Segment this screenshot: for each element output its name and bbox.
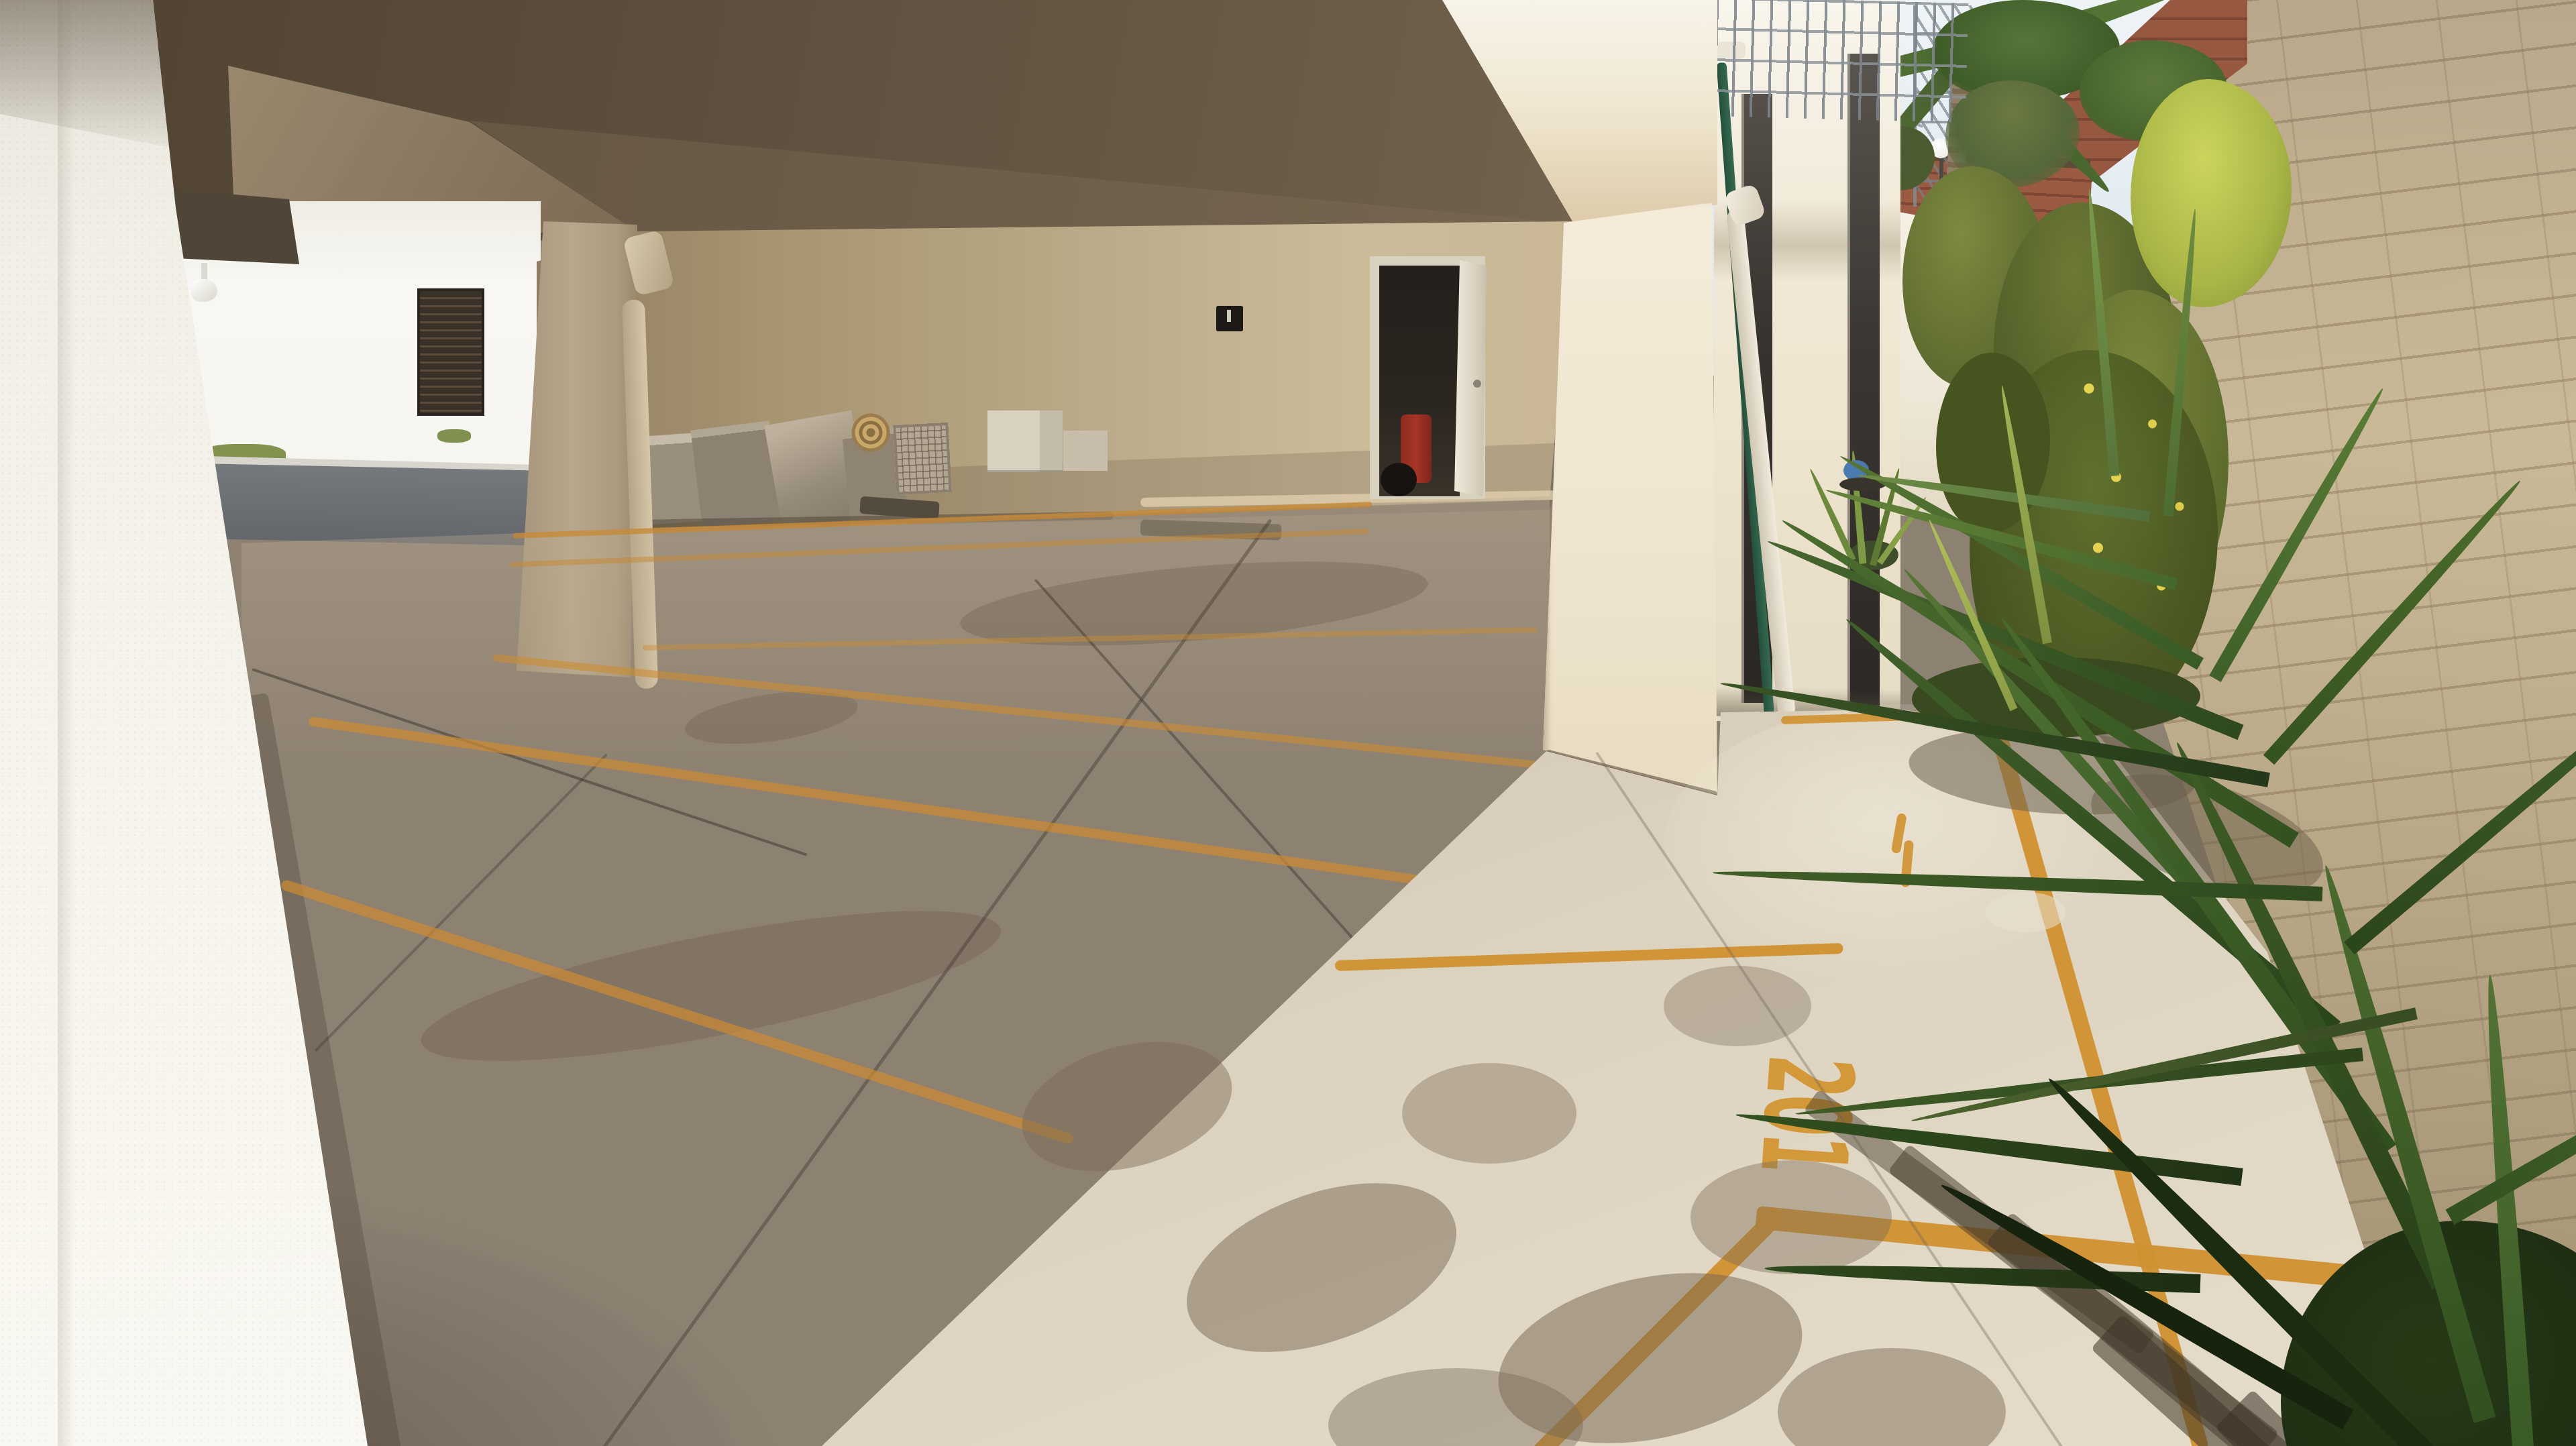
- grid-panel: [893, 423, 951, 495]
- grass-strip: [437, 429, 471, 443]
- wall-plaque-glyph: [1227, 310, 1231, 322]
- driveway: [172, 463, 541, 545]
- small-box: [1063, 431, 1108, 471]
- yellow-flowers: [2053, 335, 2234, 630]
- building-window-slot: [1847, 54, 1880, 710]
- tire-mark: [412, 880, 1010, 1091]
- open-door-leaf: [1454, 260, 1487, 496]
- coiled-rope: [843, 413, 899, 452]
- parking-spot-number-201: 201: [1878, 1061, 1885, 1068]
- balcony-railing-grid: [1713, 0, 1969, 123]
- wall-sconce-lamp: [191, 279, 217, 302]
- pillar-sunlit: [1543, 201, 1719, 798]
- paint-smudge: [1986, 892, 2066, 932]
- dappled-shadow: [1402, 1063, 1576, 1164]
- through-view-soffit: [172, 189, 306, 266]
- door-handle: [1473, 380, 1481, 388]
- louver-gate: [417, 288, 484, 416]
- white-box: [987, 410, 1063, 472]
- dark-object-in-doorway: [1381, 463, 1417, 496]
- dappled-shadow: [1664, 966, 1811, 1046]
- parking-photo-stage: 201: [0, 0, 2576, 1446]
- dappled-shadow: [1690, 1160, 1892, 1274]
